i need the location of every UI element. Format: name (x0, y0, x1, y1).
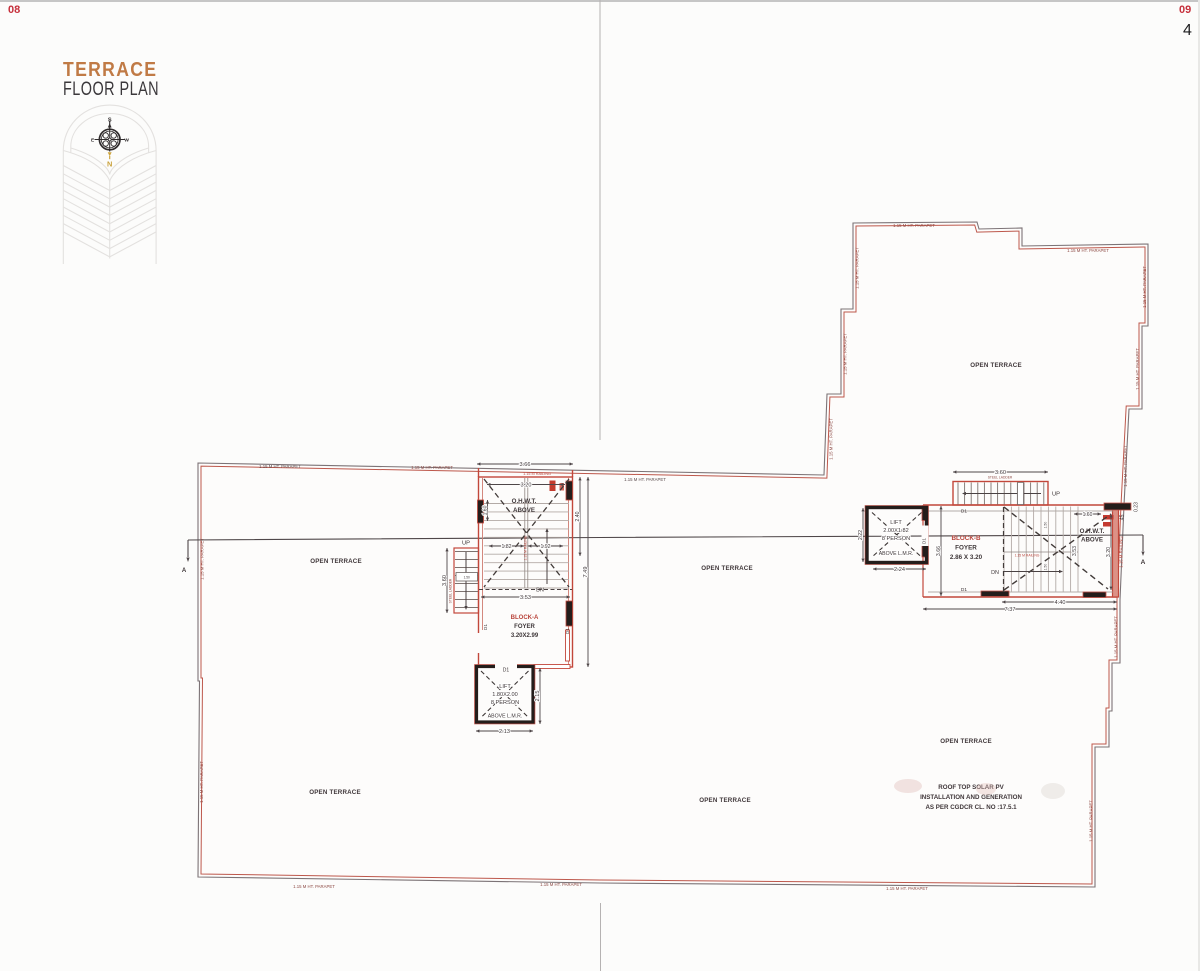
svg-text:1.15 M HT. PARAPET: 1.15 M HT. PARAPET (829, 418, 834, 460)
svg-text:1.50: 1.50 (1044, 564, 1048, 571)
svg-text:1.50: 1.50 (1044, 522, 1048, 529)
svg-text:1.15 M HT. PARAPET: 1.15 M HT. PARAPET (855, 247, 860, 289)
svg-text:OPEN TERRACE: OPEN TERRACE (970, 362, 1022, 369)
svg-text:0.23: 0.23 (1134, 502, 1140, 512)
svg-text:DN: DN (536, 588, 544, 594)
svg-text:1.15 M RAILING: 1.15 M RAILING (524, 535, 528, 560)
svg-text:OPEN TERRACE: OPEN TERRACE (699, 797, 751, 804)
svg-text:3.20: 3.20 (1106, 547, 1112, 557)
svg-text:1.15 M HT. PARAPET: 1.15 M HT. PARAPET (893, 223, 935, 228)
svg-text:8 PERSON: 8 PERSON (491, 700, 519, 706)
svg-text:1.15 M HT. PARAPET: 1.15 M HT. PARAPET (1142, 266, 1147, 308)
svg-text:2.24: 2.24 (894, 567, 905, 573)
svg-text:1.15 M RAILING: 1.15 M RAILING (523, 472, 551, 476)
svg-text:UP: UP (1052, 492, 1060, 498)
svg-text:1.15 M RAILING: 1.15 M RAILING (1015, 554, 1040, 558)
svg-text:D1: D1 (483, 624, 488, 630)
svg-text:STEEL LADDER: STEEL LADDER (988, 476, 1013, 480)
svg-text:3.53: 3.53 (1072, 546, 1078, 556)
svg-text:OPEN TERRACE: OPEN TERRACE (310, 558, 362, 565)
svg-text:2.22: 2.22 (858, 530, 864, 540)
svg-text:1.15 M HT. PARAPET: 1.15 M HT. PARAPET (259, 464, 301, 469)
svg-text:FOYER: FOYER (514, 624, 535, 630)
svg-text:1.92: 1.92 (540, 544, 550, 550)
svg-text:1.82: 1.82 (501, 544, 511, 550)
svg-text:1.60: 1.60 (1083, 512, 1093, 518)
svg-text:1.15 M HT. PARAPET: 1.15 M HT. PARAPET (1135, 348, 1140, 390)
svg-text:7.49: 7.49 (583, 567, 589, 578)
svg-text:AS PER CGDCR CL. NO :17.5.1: AS PER CGDCR CL. NO :17.5.1 (925, 804, 1017, 811)
svg-text:2.13: 2.13 (499, 729, 510, 735)
svg-text:FOYER: FOYER (955, 545, 977, 552)
svg-text:BLOCK-B: BLOCK-B (951, 535, 980, 542)
svg-text:3.20X2.99: 3.20X2.99 (511, 633, 539, 639)
svg-text:DN: DN (991, 570, 999, 576)
svg-text:N: N (107, 160, 112, 169)
svg-text:E: E (91, 138, 95, 144)
svg-text:A: A (182, 568, 187, 574)
svg-text:3.66: 3.66 (520, 462, 531, 468)
svg-text:OPEN TERRACE: OPEN TERRACE (701, 565, 753, 572)
svg-text:1.15 M HT. PARAPET: 1.15 M HT. PARAPET (1089, 800, 1094, 842)
svg-text:UP: UP (462, 541, 470, 547)
svg-text:1.15 M HT. PARAPET: 1.15 M HT. PARAPET (200, 538, 205, 580)
svg-text:OPEN TERRACE: OPEN TERRACE (309, 789, 361, 796)
svg-text:1.50: 1.50 (464, 576, 470, 580)
svg-text:ABOVE: ABOVE (1081, 537, 1103, 544)
svg-text:1.15 M HT. PARAPET: 1.15 M HT. PARAPET (293, 884, 335, 889)
svg-text:3.66: 3.66 (936, 546, 942, 556)
svg-text:2.40: 2.40 (575, 511, 581, 521)
svg-text:S: S (108, 118, 112, 124)
svg-text:1.15 M HT. PARAPET: 1.15 M HT. PARAPET (1114, 616, 1119, 658)
svg-text:BLOCK-A: BLOCK-A (511, 615, 539, 621)
svg-text:D1: D1 (565, 628, 570, 634)
svg-text:1.15 M HT. PARAPET: 1.15 M HT. PARAPET (1067, 248, 1109, 253)
svg-text:D1: D1 (503, 668, 510, 674)
svg-text:3.60: 3.60 (995, 470, 1006, 476)
svg-text:ABOVE: ABOVE (513, 507, 535, 514)
svg-text:1.15 M HT. PARAPET: 1.15 M HT. PARAPET (1123, 445, 1128, 487)
svg-text:2.86 X 3.20: 2.86 X 3.20 (950, 554, 983, 561)
svg-text:2.15: 2.15 (535, 691, 541, 702)
svg-text:1.15 M HT. PARAPET: 1.15 M HT. PARAPET (886, 886, 928, 891)
svg-text:STEEL LADDER: STEEL LADDER (449, 578, 453, 603)
svg-text:A: A (1141, 559, 1146, 566)
svg-text:D1: D1 (961, 587, 967, 593)
svg-text:O.H.W.T.: O.H.W.T. (512, 498, 537, 505)
svg-text:3.20: 3.20 (521, 482, 532, 488)
svg-text:OPEN TERRACE: OPEN TERRACE (940, 738, 992, 745)
svg-text:LIFT: LIFT (499, 684, 511, 690)
svg-text:1.15 M RAILING: 1.15 M RAILING (1119, 536, 1124, 568)
svg-text:1.15 M HT. PARAPET: 1.15 M HT. PARAPET (540, 882, 582, 887)
svg-text:INSTALLATION AND GENERATION: INSTALLATION AND GENERATION (920, 794, 1022, 801)
svg-text:LIFT: LIFT (890, 520, 902, 526)
svg-text:.45: .45 (1120, 514, 1126, 521)
svg-text:1.15 M HT. PARAPET: 1.15 M HT. PARAPET (199, 761, 204, 803)
svg-text:3.60: 3.60 (442, 575, 448, 586)
svg-text:4.40: 4.40 (1055, 600, 1066, 606)
svg-text:1.15 M HT. PARAPET: 1.15 M HT. PARAPET (843, 333, 848, 375)
svg-text:ABOVE L.M.R.: ABOVE L.M.R. (488, 714, 523, 720)
svg-text:7.37: 7.37 (1005, 607, 1016, 613)
svg-text:3.53: 3.53 (520, 595, 531, 601)
svg-text:1.60: 1.60 (482, 505, 488, 515)
svg-text:1.15 M HT. PARAPET: 1.15 M HT. PARAPET (624, 477, 666, 482)
svg-text:D1: D1 (922, 538, 927, 544)
svg-text:1.15 M HT. PARAPET: 1.15 M HT. PARAPET (411, 465, 453, 470)
svg-text:2.00X1.82: 2.00X1.82 (883, 528, 909, 534)
svg-text:W: W (124, 138, 129, 144)
svg-text:ABOVE L.M.R.: ABOVE L.M.R. (879, 551, 914, 557)
svg-text:O.H.W.T.: O.H.W.T. (1080, 528, 1105, 535)
svg-text:8 PERSON: 8 PERSON (882, 536, 910, 542)
svg-text:D1: D1 (961, 509, 967, 515)
svg-text:1.80X2.00: 1.80X2.00 (492, 692, 518, 698)
